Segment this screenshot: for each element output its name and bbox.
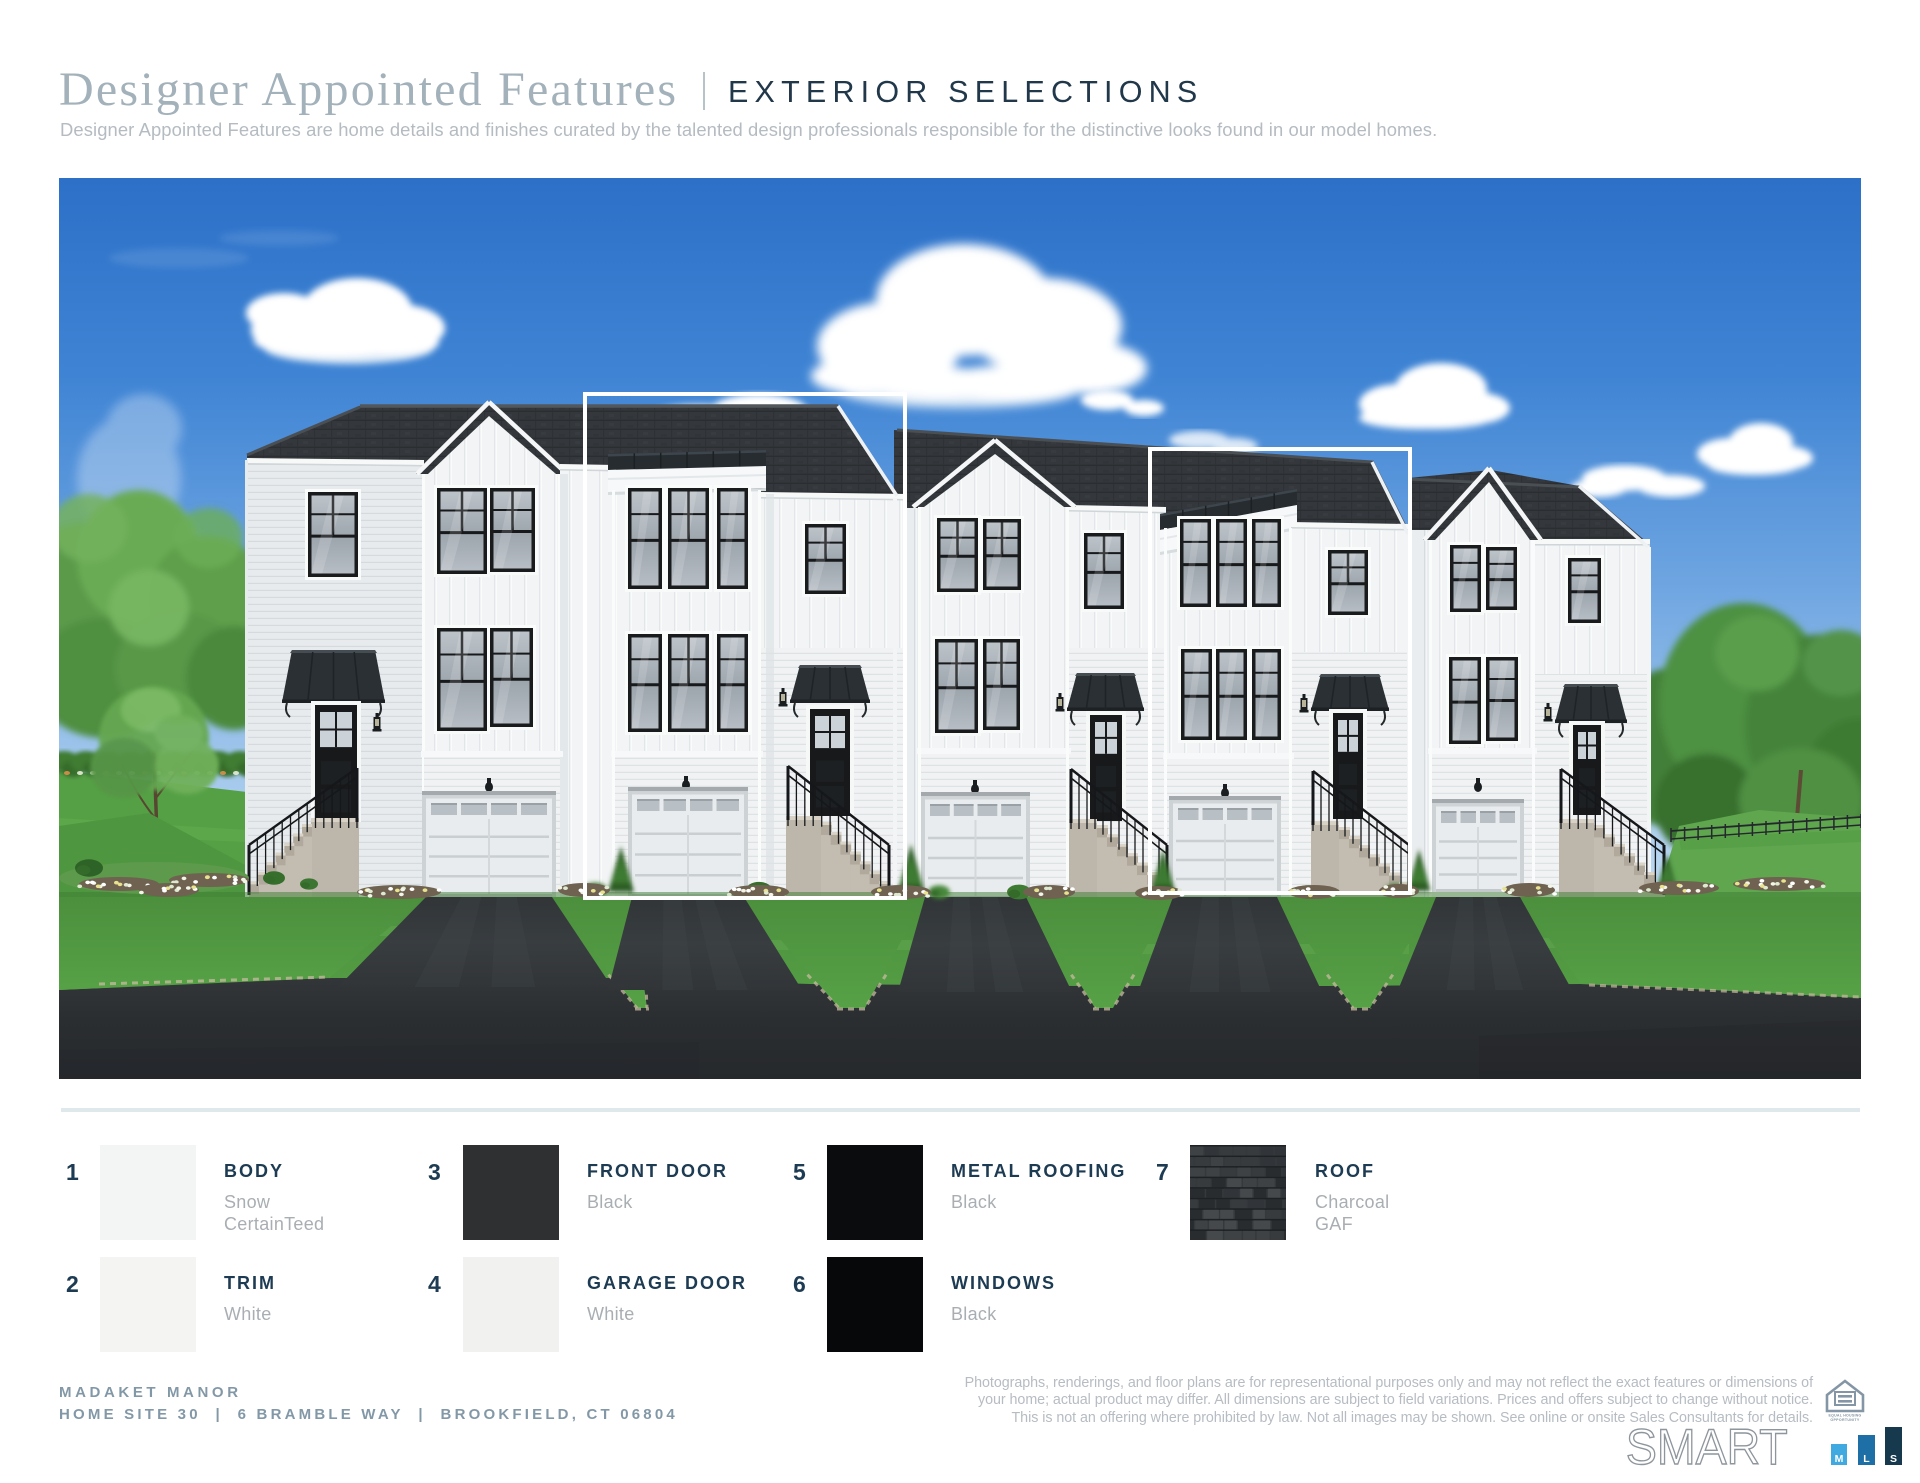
svg-text:SMART: SMART (1626, 1423, 1788, 1469)
svg-text:S: S (1890, 1453, 1897, 1465)
svg-text:L: L (1863, 1453, 1870, 1465)
svg-text:EQUAL HOUSING: EQUAL HOUSING (1829, 1414, 1862, 1418)
svg-text:OPPORTUNITY: OPPORTUNITY (1830, 1418, 1860, 1422)
svg-text:M: M (1835, 1453, 1844, 1465)
